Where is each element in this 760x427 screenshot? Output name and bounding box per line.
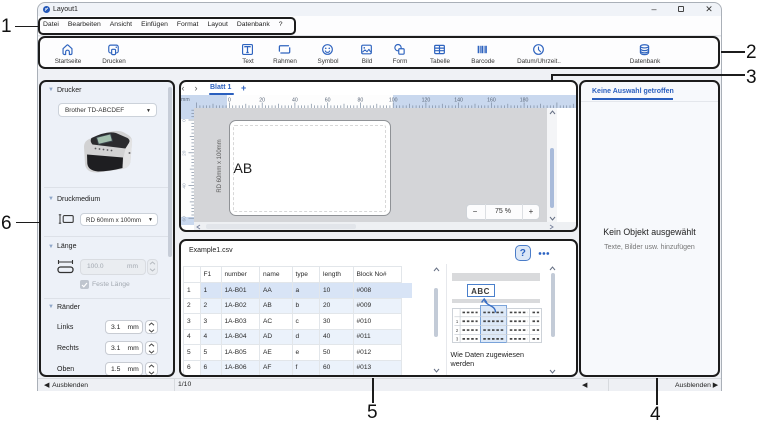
svg-text:40: 40 [182,183,188,189]
svg-text:1: 1 [456,319,459,324]
svg-text:0: 0 [228,98,231,104]
svg-text:0: 0 [182,119,188,122]
svg-text:160: 160 [487,98,496,104]
svg-text:100: 100 [389,98,398,104]
svg-text:2: 2 [456,327,459,332]
svg-text:60: 60 [325,98,331,104]
svg-text:80: 80 [358,98,364,104]
svg-text:140: 140 [454,98,463,104]
svg-text:180: 180 [520,98,529,104]
svg-text:120: 120 [422,98,431,104]
svg-text:60: 60 [182,216,188,222]
svg-text:20: 20 [182,150,188,156]
svg-text:3: 3 [456,336,459,341]
svg-text:20: 20 [259,98,265,104]
svg-text:40: 40 [292,98,298,104]
